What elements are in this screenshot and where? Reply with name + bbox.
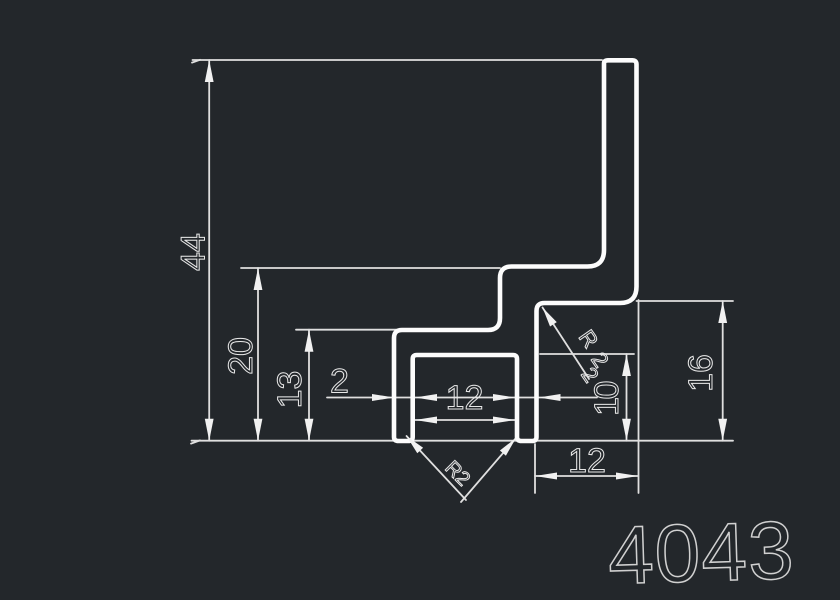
svg-text:R: R [574, 325, 604, 352]
svg-text:R2: R2 [440, 457, 474, 491]
svg-text:13: 13 [271, 371, 309, 409]
svg-text:16: 16 [682, 354, 720, 392]
svg-text:12: 12 [446, 379, 484, 417]
svg-text:44: 44 [175, 233, 213, 271]
svg-text:12: 12 [568, 442, 606, 480]
svg-text:10: 10 [588, 382, 626, 416]
svg-text:2: 2 [330, 363, 349, 401]
svg-text:20: 20 [222, 337, 260, 375]
svg-text:4043: 4043 [607, 505, 796, 600]
